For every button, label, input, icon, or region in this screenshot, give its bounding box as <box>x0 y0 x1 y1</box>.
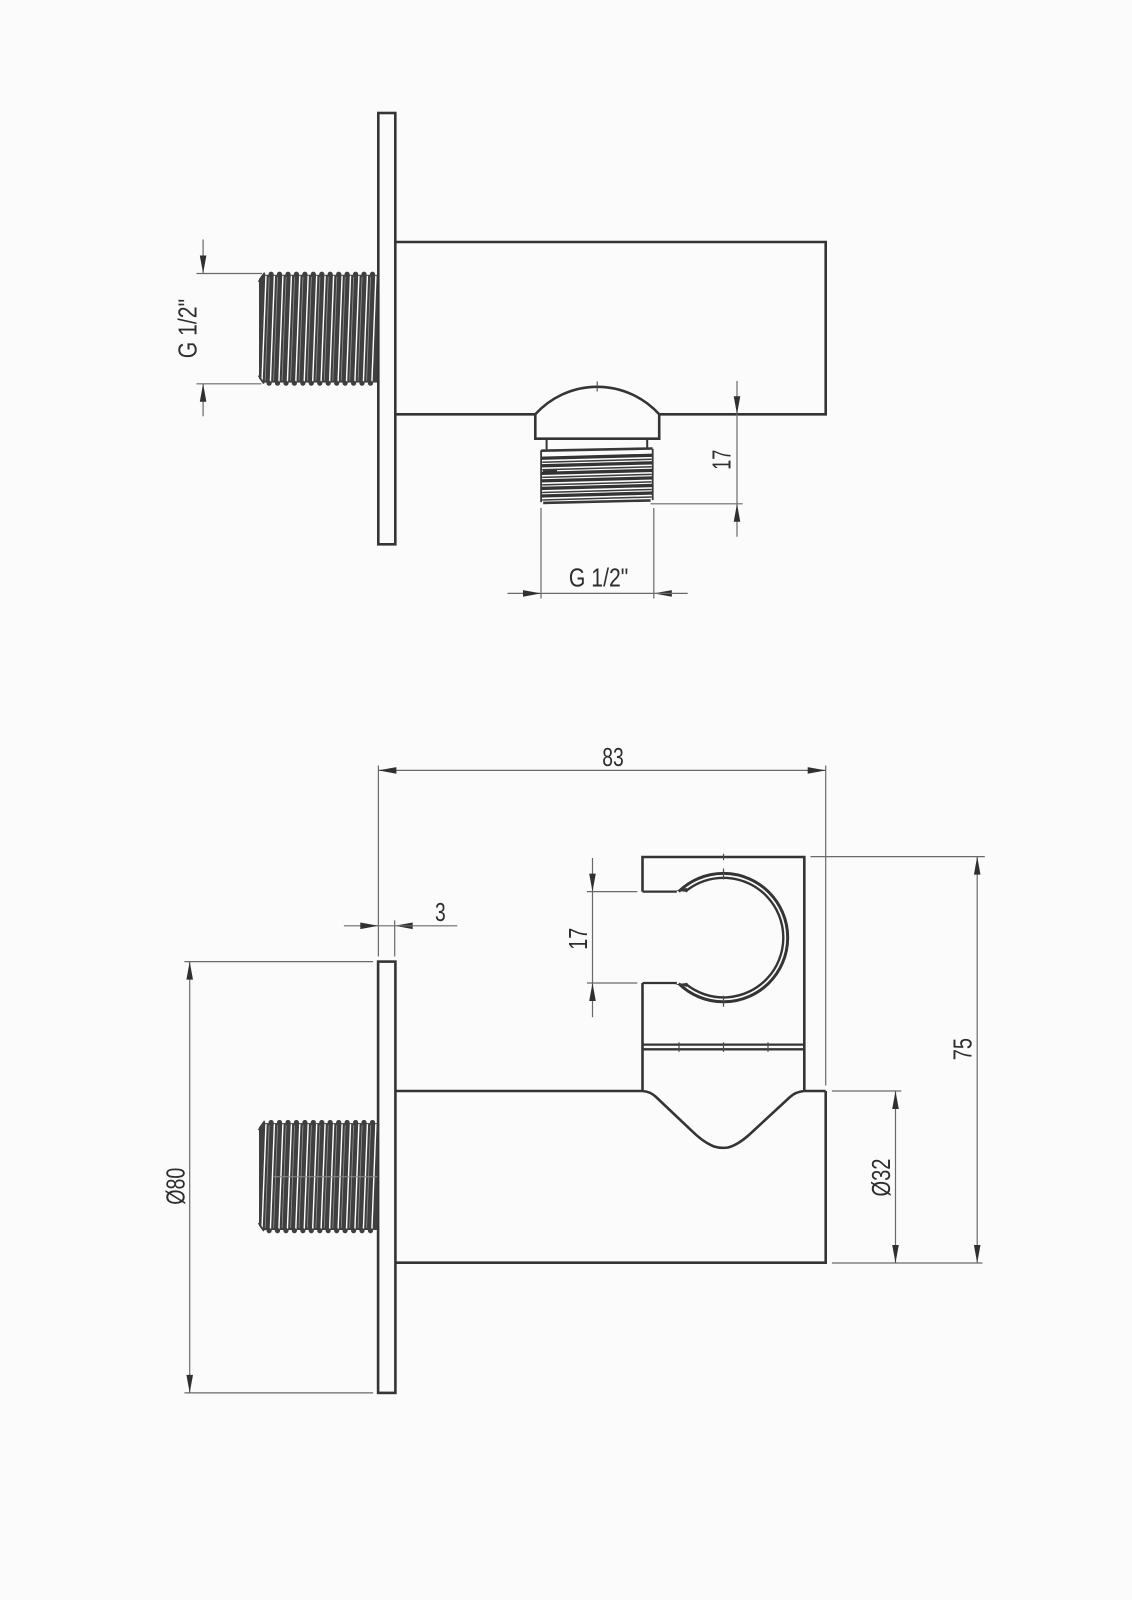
svg-text:G 1/2": G 1/2" <box>569 563 628 593</box>
svg-text:75: 75 <box>947 1038 977 1060</box>
svg-text:17: 17 <box>706 450 736 470</box>
svg-text:Ø32: Ø32 <box>866 1159 896 1197</box>
svg-text:Ø80: Ø80 <box>161 1168 191 1205</box>
svg-text:83: 83 <box>602 742 624 772</box>
svg-text:3: 3 <box>435 897 446 927</box>
svg-text:17: 17 <box>563 928 593 950</box>
svg-text:G 1/2": G 1/2" <box>172 299 202 358</box>
